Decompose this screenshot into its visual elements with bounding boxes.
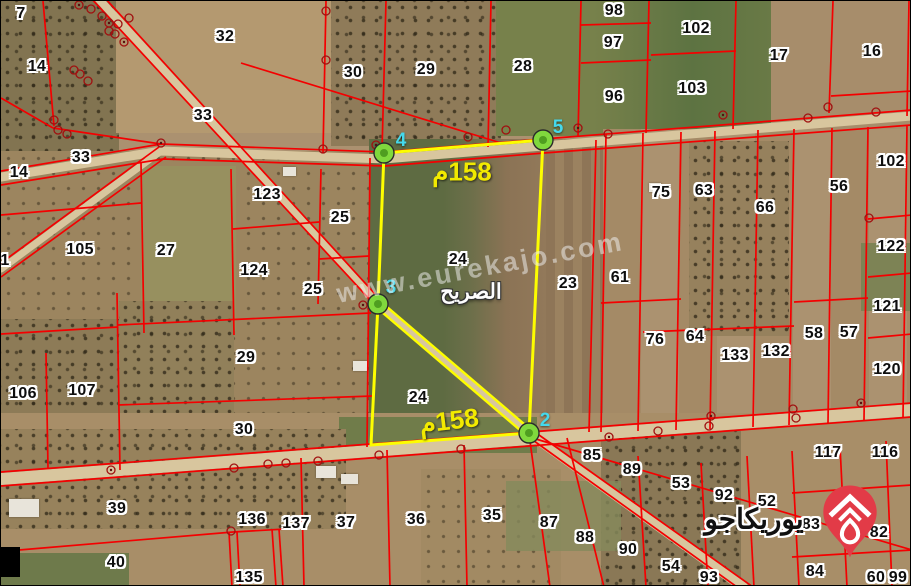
parcel-label-29: 29	[237, 349, 255, 367]
parcel-label-106: 106	[9, 385, 37, 403]
parcel-label-85: 85	[583, 447, 601, 465]
parcel-label-39: 39	[108, 500, 126, 518]
parcel-label-23: 23	[559, 275, 577, 293]
parcel-label-97: 97	[604, 34, 622, 52]
parcel-label-87: 87	[540, 514, 558, 532]
parcel-label-64: 64	[686, 328, 704, 346]
parcel-label-30: 30	[235, 421, 253, 439]
parcel-label-28: 28	[514, 58, 532, 76]
eurekajo-logo-text: يوريكاجو	[704, 503, 803, 536]
parcel-label-102: 102	[682, 20, 710, 38]
parcel-label-107: 107	[68, 382, 96, 400]
parcel-label-7: 7	[16, 5, 25, 23]
parcel-label-33: 33	[72, 149, 90, 167]
parcel-label-27: 27	[157, 242, 175, 260]
parcel-label-133: 133	[721, 347, 749, 365]
parcel-label-89: 89	[623, 461, 641, 479]
parcel-label-40: 40	[107, 554, 125, 572]
parcel-label-25: 25	[304, 281, 322, 299]
censored-block	[1, 547, 20, 577]
parcel-label-30: 30	[344, 64, 362, 82]
parcel-label-116: 116	[872, 444, 899, 462]
vertex-label-4: 4	[396, 130, 407, 152]
parcel-label-103: 103	[678, 80, 706, 98]
parcel-label-17: 17	[770, 47, 788, 65]
parcel-label-53: 53	[672, 475, 690, 493]
parcel-label-14: 14	[28, 58, 46, 76]
parcel-label-102: 102	[877, 153, 905, 171]
satellite-map: 7321433143312325105271242513029289897961…	[0, 0, 911, 586]
parcel-label-60: 60	[867, 569, 885, 586]
parcel-label-121: 121	[873, 298, 901, 316]
parcel-label-135: 135	[235, 569, 263, 586]
parcel-label-56: 56	[830, 178, 848, 196]
parcel-label-99: 99	[889, 569, 907, 586]
parcel-label-96: 96	[605, 88, 623, 106]
parcel-label-16: 16	[863, 43, 881, 61]
parcel-label-63: 63	[695, 182, 713, 200]
plot-area-label-1: 158م	[432, 157, 492, 188]
parcel-label-122: 122	[877, 238, 905, 256]
parcel-label-93: 93	[700, 569, 718, 586]
parcel-label-32: 32	[216, 28, 234, 46]
parcel-label-14: 14	[10, 164, 28, 182]
parcel-label-120: 120	[873, 361, 901, 379]
parcel-label-83: 83	[802, 516, 820, 534]
parcel-label-90: 90	[619, 541, 637, 559]
parcel-label-25: 25	[331, 209, 349, 227]
parcel-label-136: 136	[238, 511, 266, 529]
eurekajo-logo-pin-icon	[821, 483, 879, 561]
parcel-label-24: 24	[409, 389, 427, 407]
vertex-label-5: 5	[553, 117, 564, 139]
parcel-label-75: 75	[652, 184, 670, 202]
parcel-label-105: 105	[66, 241, 94, 259]
plot-area-label-2: 158م	[418, 402, 481, 440]
parcel-label-137: 137	[282, 515, 310, 533]
parcel-label-98: 98	[605, 2, 623, 20]
parcel-label-76: 76	[646, 331, 664, 349]
parcel-label-61: 61	[611, 269, 629, 287]
parcel-label-37: 37	[337, 514, 355, 532]
parcel-label-1: 1	[0, 252, 9, 270]
parcel-label-58: 58	[805, 325, 823, 343]
parcel-label-117: 117	[815, 444, 842, 462]
parcel-label-35: 35	[483, 507, 501, 525]
parcel-label-124: 124	[240, 262, 268, 280]
parcel-label-88: 88	[576, 529, 594, 547]
vertex-label-2: 2	[540, 410, 551, 432]
parcel-label-123: 123	[253, 186, 281, 204]
parcel-label-54: 54	[662, 558, 680, 576]
parcel-label-57: 57	[840, 324, 858, 342]
parcel-label-66: 66	[756, 199, 774, 217]
parcel-label-29: 29	[417, 61, 435, 79]
parcel-label-36: 36	[407, 511, 425, 529]
parcel-label-132: 132	[762, 343, 790, 361]
parcel-label-33: 33	[194, 107, 212, 125]
parcel-label-84: 84	[806, 563, 824, 581]
